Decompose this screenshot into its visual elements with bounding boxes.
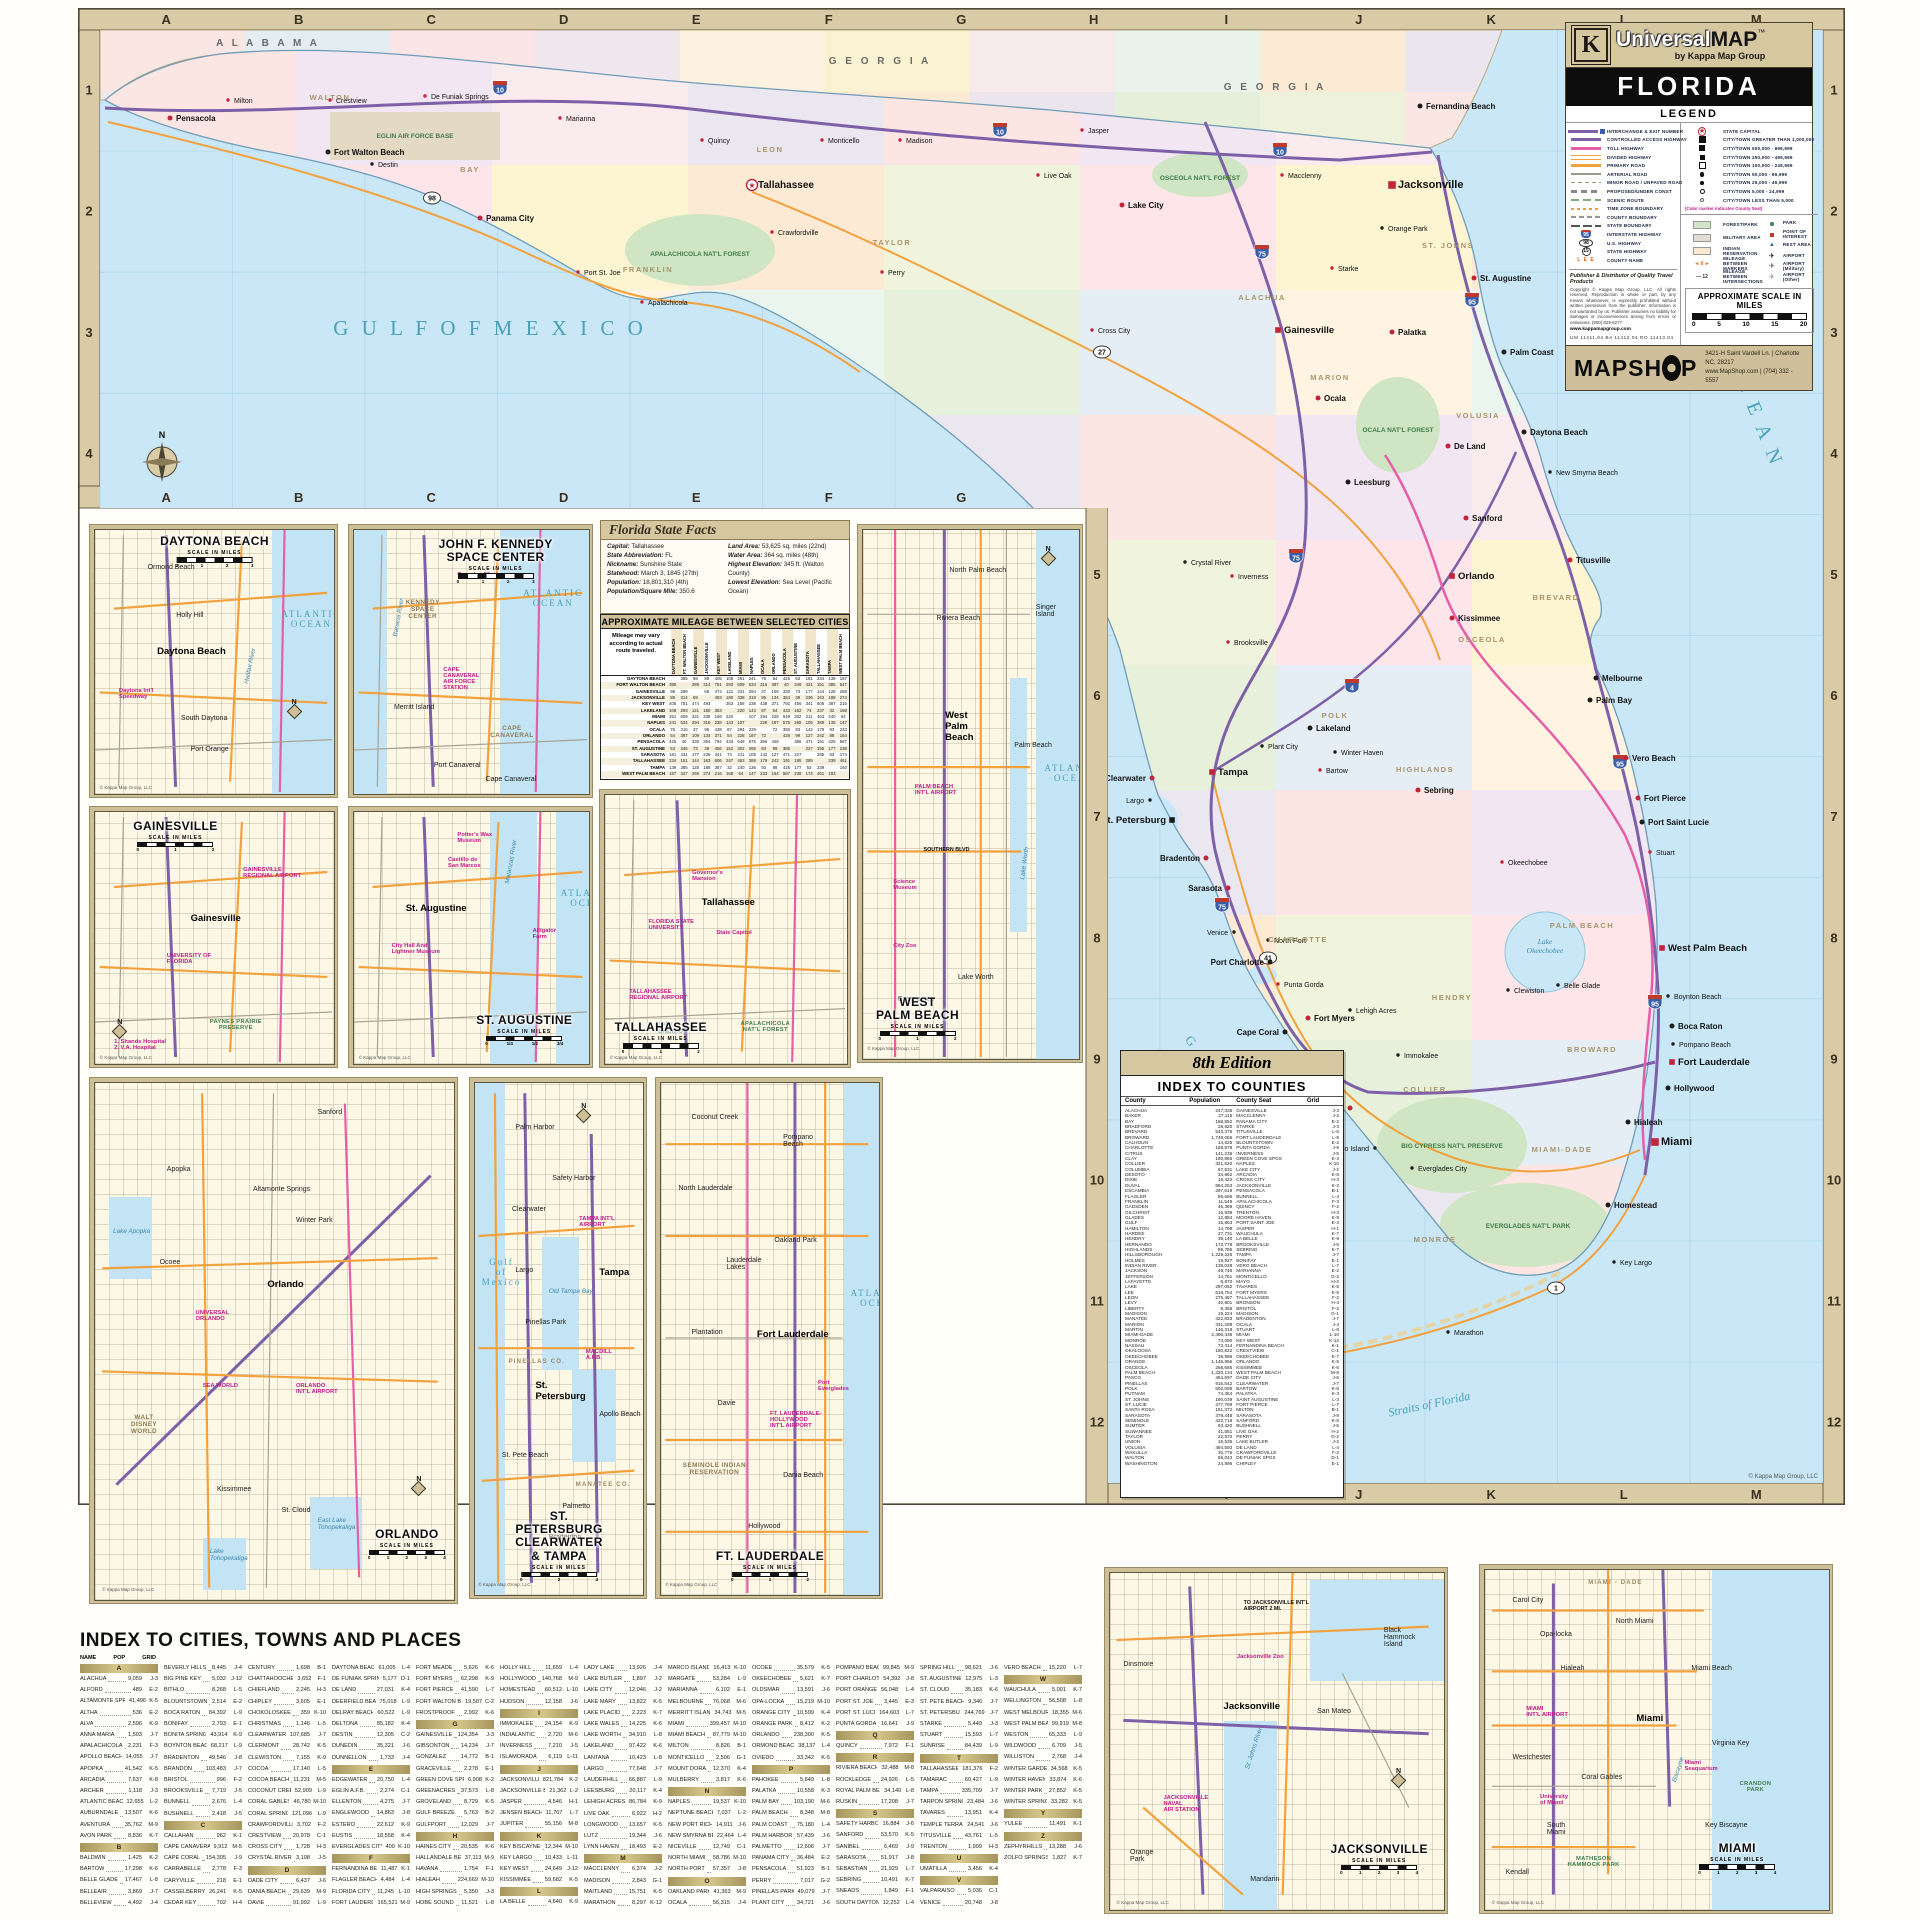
inset-credit: © Kappa Map Group, LLC	[1492, 1900, 1544, 1905]
map-label: Port Orange	[191, 746, 229, 753]
city-index-entry: FERNANDINA BEACH11,487K-1	[332, 1864, 410, 1875]
map-label: UNIVERSAL ORLANDO	[196, 1310, 230, 1322]
city-index-entry: CENTURY1,698B-1	[248, 1663, 326, 1674]
legend-item-label: CITY/TOWN 50,000 - 99,999	[1723, 172, 1787, 177]
map-label: PAYNES PRAIRIE PRESERVE	[210, 1019, 262, 1031]
city-index-entry: HAINES CITY20,535K-6	[416, 1842, 494, 1853]
city-index-entry: BROOKSVILLE7,719J-5	[164, 1786, 242, 1797]
city-index-entry: JENSEN BEACH11,707L-7	[500, 1808, 578, 1819]
city-index-column: BEVERLY HILLS8,445J-4BIG PINE KEY5,032J-…	[164, 1663, 242, 1911]
svg-text:Port Saint Lucie: Port Saint Lucie	[1648, 818, 1709, 827]
map-label: Mandarin	[1250, 1876, 1279, 1883]
svg-text:C: C	[427, 490, 437, 505]
north-arrow-icon: N	[1040, 546, 1056, 564]
city-index-entry: PORT ORANGE56,048L-4	[836, 1685, 914, 1696]
svg-text:A: A	[162, 12, 172, 27]
svg-text:C: C	[427, 12, 437, 27]
city-index-column: OCOEE35,579K-5OKEECHOBEE5,621K-7OLDSMAR1…	[752, 1663, 830, 1911]
city-index-entry: WINTER HAVEN33,874K-6	[1004, 1775, 1082, 1786]
city-index-entry: LAKE PLACID2,223K-7	[584, 1708, 662, 1719]
city-index-entry: RIVIERA BEACH32,488M-8	[836, 1763, 914, 1774]
map-label: Apollo Beach	[599, 1411, 640, 1418]
fact-row: Population/Square Mile: 350.6	[607, 588, 722, 597]
inset-scale-label: SCALE IN MILES	[515, 1565, 603, 1571]
svg-text:Port St. Joe: Port St. Joe	[584, 270, 621, 277]
svg-text:Venice: Venice	[1207, 930, 1228, 937]
svg-text:De Land: De Land	[1454, 442, 1486, 451]
map-label: Miami Beach	[1691, 1665, 1731, 1672]
legend-swatch-state	[1569, 222, 1603, 230]
city-index-entry: CHATTAHOOCHEE3,652F-1	[248, 1674, 326, 1685]
svg-text:Punta Gorda: Punta Gorda	[1284, 982, 1324, 989]
map-label: TAMPA INT'L AIRPORT	[579, 1216, 614, 1228]
county-row: WASHINGTON24,896CHIPLEYE-1	[1125, 1461, 1339, 1466]
mapshop-logo: MAPSHOP	[1574, 355, 1697, 382]
map-label: Safety Harbor	[552, 1175, 595, 1182]
map-label: South Daytona	[181, 715, 227, 722]
inset-title-text: WEST PALM BEACH	[876, 996, 959, 1022]
inset-title-text: FT. LAUDERDALE	[716, 1550, 824, 1563]
fact-row: Water Area: 364 sq. miles (48th)	[728, 552, 843, 561]
legend-swatch-proposed	[1569, 187, 1603, 195]
legend-item: 95INTERSTATE HIGHWAY	[1569, 230, 1677, 239]
svg-text:MIAMI-DADE: MIAMI-DADE	[1532, 1145, 1593, 1154]
map-label: Port Everglades	[818, 1380, 849, 1392]
city-index-section: V	[920, 1876, 998, 1885]
svg-text:Marianna: Marianna	[566, 116, 595, 123]
city-index-section: B	[80, 1843, 158, 1852]
map-label: KENNEDY SPACE CENTER	[406, 599, 440, 620]
mileage-col-header: PENSACOLA	[782, 629, 793, 675]
svg-text:7: 7	[1830, 809, 1837, 824]
inset-roads	[95, 1083, 452, 1598]
legend-item-label: CITY/TOWN 5,000 - 24,999	[1723, 189, 1784, 194]
svg-text:G U L F O F M E X I: G U L F O F M E X I C O	[333, 316, 646, 340]
map-label: West Palm Beach	[945, 710, 974, 743]
mapshop-address: 3421-H Saint Vardell Ln. | Charlotte NC,…	[1705, 350, 1804, 368]
city-index-entry: SANIBEL6,469J-9	[836, 1842, 914, 1853]
map-label: North Palm Beach	[949, 567, 1006, 574]
city-index-column: AALACHUA9,059J-3ALFORD489E-2ALTAMONTE SP…	[80, 1663, 158, 1911]
fact-row: Statehood: March 3, 1845 (27th)	[607, 570, 722, 579]
legend-item-label: ARTERIAL ROAD	[1607, 172, 1648, 177]
city-index-section: Z	[1004, 1832, 1082, 1841]
inset-title-text: GAINESVILLE	[133, 820, 217, 833]
legend-swatch-minor	[1569, 179, 1603, 187]
city-index-entry: CRAWFORDVILLE3,702F-2	[248, 1820, 326, 1831]
city-index-entry: TITUSVILLE43,761L-5	[920, 1831, 998, 1842]
map-label: Lake Tohopekaliga	[210, 1548, 248, 1562]
legend-item: CITY/TOWN LESS THAN 5,000	[1685, 196, 1814, 205]
city-index-entry: PERRY7,017G-2	[752, 1876, 830, 1887]
inset-map-gainesville: GainesvilleUNIVERSITY OF FLORIDAGAINESVI…	[94, 811, 335, 1065]
map-label: St. Augustine	[406, 903, 467, 914]
map-label: Tallahassee	[702, 897, 755, 908]
legend-swatch-toll	[1569, 144, 1603, 152]
inset-orlando: SanfordApopkaAltamonte SpringsWinter Par…	[90, 1078, 457, 1603]
city-index-column: POMPANO BEACH99,845M-9PORT CHARLOTTE54,3…	[836, 1663, 914, 1911]
legend-title: LEGEND	[1566, 106, 1812, 123]
svg-text:Destin: Destin	[378, 162, 398, 169]
city-index-entry: JACKSONVILLE BEACH21,362L-2	[500, 1786, 578, 1797]
fact-row: Nickname: Sunshine State	[607, 561, 722, 570]
mileage-cell: 164	[769, 771, 780, 777]
inset-staug: St. AugustineCastillo de San MarcosCity …	[349, 807, 592, 1067]
city-index-section: M	[584, 1854, 662, 1863]
svg-text:Fernandina Beach: Fernandina Beach	[1426, 102, 1495, 111]
city-index-column: MARCO ISLAND16,413K-10MARGATE53,284L-9MA…	[668, 1663, 746, 1911]
city-index-entry: CARRABELLE2,778F-3	[164, 1864, 242, 1875]
svg-text:D: D	[559, 12, 568, 27]
svg-text:3: 3	[85, 325, 92, 340]
city-index-entry: CHIPLEY3,605E-1	[248, 1697, 326, 1708]
svg-text:Boynton Beach: Boynton Beach	[1674, 994, 1722, 1001]
city-index-entry: GULF BREEZE5,763B-2	[416, 1808, 494, 1819]
city-index-entry: TAMARAC60,427L-9	[920, 1775, 998, 1786]
inset-scale-ticks: 0123	[176, 563, 254, 568]
map-label: TO JACKSONVILLE INT'L AIRPORT 2 MI.	[1244, 1600, 1309, 1612]
city-index-entry: DADE CITY6,437J-6	[248, 1876, 326, 1887]
svg-text:10: 10	[1090, 1172, 1104, 1187]
svg-text:Panama City: Panama City	[486, 214, 535, 223]
inset-title-gainesville: GAINESVILLESCALE IN MILES012	[133, 820, 217, 853]
map-label: Oakland Park	[774, 1237, 816, 1244]
svg-text:© Kappa Map Group, LLC: © Kappa Map Group, LLC	[1749, 1473, 1819, 1480]
inset-map-wpb: ATLANTIC OCEANSinger IslandRiviera Beach…	[862, 529, 1080, 1060]
svg-text:Bartow: Bartow	[1326, 768, 1349, 775]
legend-item-label: STATE BOUNDARY	[1607, 223, 1652, 228]
city-index-section: Q	[836, 1731, 914, 1740]
svg-text:BAY: BAY	[460, 165, 480, 174]
map-label: Castillo de San Marcos	[448, 857, 481, 869]
svg-text:Titusville: Titusville	[1576, 556, 1611, 565]
city-index-entry: EVERGLADES CITY400K-10	[332, 1842, 410, 1853]
city-index-entry: CRESTVIEW20,978C-1	[248, 1831, 326, 1842]
mileage-col-header: GAINESVILLE	[693, 629, 704, 675]
mileage-cell: 147	[747, 771, 758, 777]
mileage-title: APPROXIMATE MILEAGE BETWEEN SELECTED CIT…	[601, 615, 849, 629]
city-index-entry: MAITLAND15,751K-5	[584, 1887, 662, 1898]
mileage-cell	[838, 771, 849, 777]
svg-text:Stuart: Stuart	[1656, 850, 1675, 857]
city-index-entry: PORT ST. JOE3,445E-3	[836, 1697, 914, 1708]
city-index-section: R	[836, 1753, 914, 1762]
map-label: Daytona Beach	[157, 646, 226, 657]
legend-item: — 12MILEAGE BETWEEN INTERSECTIONS	[1685, 270, 1763, 283]
map-label: Davie	[718, 1400, 736, 1407]
legend-item: SCENIC ROUTE	[1569, 196, 1677, 205]
map-label: Potter's Wax Museum	[457, 832, 492, 844]
city-index-entry: APOLLO BEACH14,055J-7	[80, 1752, 158, 1763]
city-index-entry: DANIA BEACH29,639M-9	[248, 1887, 326, 1898]
map-label: Hialeah	[1561, 1665, 1585, 1672]
city-index-entry: GREENACRES37,573L-8	[416, 1786, 494, 1797]
svg-text:98: 98	[428, 196, 436, 203]
city-index-entry: GREEN COVE SPRINGS6,908K-2	[416, 1775, 494, 1786]
mileage-col-header: OCALA	[760, 629, 771, 675]
svg-text:9: 9	[1830, 1051, 1837, 1066]
svg-text:Lakeland: Lakeland	[1316, 724, 1351, 733]
legend-item: COUNTY BOUNDARY	[1569, 213, 1677, 222]
city-index-entry: ST. PETERSBURG244,769J-7	[920, 1708, 998, 1719]
legend-item-label: CITY/TOWN GREATER THAN 1,000,000	[1723, 137, 1814, 142]
city-index-entry: HIALEAH224,669M-10	[416, 1875, 494, 1886]
city-index-entry: CLEARWATER107,685J-7	[248, 1730, 326, 1741]
inset-title-tallahassee: TALLAHASSEESCALE IN MILES012	[615, 1021, 707, 1054]
svg-text:HENDRY: HENDRY	[1432, 993, 1472, 1002]
inset-title-daytona: DAYTONA BEACHSCALE IN MILES0123	[160, 535, 269, 568]
city-index-entry: TEMPLE TERRACE24,541J-6	[920, 1820, 998, 1831]
city-index-entry: NORTH MIAMI58,786M-10	[668, 1853, 746, 1864]
svg-text:Sarasota: Sarasota	[1188, 884, 1222, 893]
svg-text:PALM BEACH: PALM BEACH	[1550, 921, 1614, 930]
city-index-entry: ST. AUGUSTINE12,975L-3	[920, 1674, 998, 1685]
city-index-entry: FROSTPROOF2,992K-6	[416, 1708, 494, 1719]
svg-text:7: 7	[1093, 809, 1100, 824]
svg-text:Hialeah: Hialeah	[1634, 1118, 1663, 1127]
city-index-entry: IMMOKALEE24,154K-9	[500, 1719, 578, 1730]
city-index-entry: EDGEWATER20,750L-4	[332, 1775, 410, 1786]
city-index-entry: OCOEE35,579K-5	[752, 1663, 830, 1674]
map-label: SEA WORLD	[203, 1383, 238, 1389]
svg-text:Jacksonville: Jacksonville	[1398, 179, 1463, 191]
mapshop-bar: MAPSHOP 3421-H Saint Vardell Ln. | Charl…	[1566, 345, 1812, 390]
city-index-entry: COCOA17,140L-5	[248, 1764, 326, 1775]
svg-text:Ocala: Ocala	[1324, 394, 1346, 403]
svg-text:Perry: Perry	[888, 270, 905, 277]
city-index-entry: ANNA MARIA1,503J-7	[80, 1730, 158, 1741]
map-label: Coral Gables	[1581, 1774, 1622, 1781]
mileage-col-header: ORLANDO	[771, 629, 782, 675]
city-index-entry: JASPER4,546H-1	[500, 1797, 578, 1808]
mileage-cell: 64	[735, 771, 746, 777]
map-label: University of Miami	[1540, 1794, 1568, 1806]
city-index-entry: ST. CLOUD35,183K-6	[920, 1685, 998, 1696]
svg-text:Pensacola: Pensacola	[176, 114, 216, 123]
city-index-entry: MIAMI BEACH87,779M-10	[668, 1730, 746, 1741]
map-label: ATLANTIC OCEAN	[561, 888, 590, 908]
brand-map: MAP	[1711, 28, 1758, 51]
city-index-entry: CORAL GABLES46,780M-10	[248, 1797, 326, 1808]
svg-text:Crystal River: Crystal River	[1191, 560, 1232, 567]
city-index-entry: YULEE11,491K-1	[1004, 1819, 1082, 1830]
inset-credit: © Kappa Map Group, LLC	[1117, 1900, 1169, 1905]
city-index-entry: HOLLY HILL11,659L-4	[500, 1663, 578, 1674]
city-index-entry: BOYNTON BEACH68,217L-9	[164, 1741, 242, 1752]
svg-text:St. Augustine: St. Augustine	[1480, 274, 1532, 283]
legend-item: INTERCHANGE & EXIT NUMBER	[1569, 127, 1677, 136]
mileage-col-header: KEY WEST	[716, 629, 727, 675]
map-label: St. Pete Beach	[502, 1452, 549, 1459]
svg-text:Belle Glade: Belle Glade	[1564, 983, 1600, 990]
svg-text:Tampa: Tampa	[1218, 767, 1249, 778]
mileage-col-header: ST. AUGUSTINE	[793, 629, 804, 675]
legend-points-col: PARKPOINT OF INTEREST▲REST AREA✈AIRPORT✈…	[1765, 218, 1814, 283]
map-label: State Capitol	[716, 930, 751, 936]
svg-text:11: 11	[1090, 1294, 1104, 1309]
city-index-entry: BLOUNTSTOWN2,514E-2	[164, 1697, 242, 1708]
legend-item-label: STATE HIGHWAY	[1607, 249, 1647, 254]
svg-text:9: 9	[1093, 1051, 1100, 1066]
city-index-section: A	[80, 1664, 158, 1673]
city-index-entry: ST. PETE BEACH9,346J-7	[920, 1697, 998, 1708]
legend-item: TIME ZONE BOUNDARY	[1569, 204, 1677, 213]
city-index-entry: SNEADS1,849F-1	[836, 1886, 914, 1897]
city-index-entry: CLERMONT28,742K-5	[248, 1741, 326, 1752]
svg-text:APALACHICOLA NAT'L FOREST: APALACHICOLA NAT'L FOREST	[650, 251, 750, 258]
svg-text:5: 5	[1830, 567, 1837, 582]
svg-text:1: 1	[1830, 83, 1837, 98]
svg-text:Milton: Milton	[234, 98, 253, 105]
city-index-entry: ATLANTIC BEACH12,655L-2	[80, 1797, 158, 1808]
city-index-entry: INVERNESS7,210J-5	[500, 1741, 578, 1752]
city-index-entry: MERRITT ISLAND34,743M-5	[668, 1708, 746, 1719]
city-index-entry: WINTER GARDEN34,568K-5	[1004, 1764, 1082, 1775]
svg-text:Fort Walton Beach: Fort Walton Beach	[334, 148, 404, 157]
map-label: Jacksonville Zoo	[1237, 1654, 1284, 1660]
svg-text:Gainesville: Gainesville	[1284, 325, 1334, 336]
city-index-entry: PAHOKEE5,649L-8	[752, 1775, 830, 1786]
city-index-section: F	[332, 1854, 410, 1863]
inset-scale-ticks: 01234	[1340, 1870, 1418, 1875]
inset-scale-label: SCALE IN MILES	[1330, 1858, 1427, 1864]
city-index-entry: WILLISTON2,768J-4	[1004, 1752, 1082, 1763]
city-index-entry: BEVERLY HILLS8,445J-4	[164, 1663, 242, 1674]
inset-map-jfk: ATLANTIC OCEANKENNEDY SPACE CENTERCAPE C…	[353, 529, 590, 795]
city-index-entry: CLEWISTON7,155K-9	[248, 1753, 326, 1764]
legend-swatch-timezone	[1569, 205, 1603, 213]
inset-title-jfk: JOHN F. KENNEDY SPACE CENTERSCALE IN MIL…	[439, 538, 553, 584]
map-label: Palm Harbor	[515, 1124, 554, 1131]
map-label: Orlando	[267, 1279, 303, 1290]
svg-text:1: 1	[85, 83, 92, 98]
legend-item: ✈AIRPORT (Military)	[1765, 262, 1814, 273]
city-index-entry: APOPKA41,542K-5	[80, 1764, 158, 1775]
city-index-entry: DE LAND27,031K-4	[332, 1685, 410, 1696]
city-index-entry: OVIEDO33,342K-5	[752, 1753, 830, 1764]
inset-wpb: ATLANTIC OCEANSinger IslandRiviera Beach…	[858, 525, 1082, 1062]
legend-item-label: PROPOSED/UNDER CONST	[1607, 189, 1672, 194]
svg-text:Fort Pierce: Fort Pierce	[1644, 794, 1686, 803]
map-label: SEMINOLE INDIAN RESERVATION	[683, 1462, 746, 1476]
map-label: CAPE CANAVERAL AIR FORCE STATION	[443, 667, 479, 691]
map-label: TALLAHASSEE REGIONAL AIRPORT	[629, 989, 687, 1001]
city-index-entry: LIVE OAK6,922H-2	[584, 1809, 662, 1820]
inset-map-ftlaud: ATLANTIC OCEANCoconut CreekPompano Beach…	[660, 1082, 880, 1596]
city-index-entry: ALVA2,596K-9	[80, 1719, 158, 1730]
mileage-cell: 233	[758, 771, 769, 777]
city-index-entry: AUBURNDALE13,507K-6	[80, 1808, 158, 1819]
city-index-entry: ORANGE CITY10,599K-4	[752, 1708, 830, 1719]
city-index-entry: OCALA56,315J-4	[668, 1898, 746, 1909]
legend-item: CONTROLLED ACCESS HIGHWAY	[1569, 136, 1677, 145]
map-label: Old Tampa Bay	[549, 1288, 593, 1295]
map-label: Lake Worth	[958, 974, 994, 981]
svg-text:Inverness: Inverness	[1238, 574, 1269, 581]
city-index-entry: NAPLES19,537K-10	[668, 1797, 746, 1808]
city-index-entry: DAYTONA BEACH61,005L-4	[332, 1663, 410, 1674]
city-index-entry: CHRISTMAS1,146L-5	[248, 1719, 326, 1730]
city-index-entry: FORT PIERCE41,590L-7	[416, 1685, 494, 1696]
city-index-entry: DESTIN12,305C-2	[332, 1730, 410, 1741]
legend-swatch-sq2	[1685, 144, 1719, 152]
city-index-entry: BRISTOL996F-2	[164, 1775, 242, 1786]
publisher-website: www.kappamapgroup.com	[1570, 327, 1676, 332]
inset-title-text: JOHN F. KENNEDY SPACE CENTER	[439, 538, 553, 564]
legend-item: 98U.S. HIGHWAY	[1569, 239, 1677, 248]
svg-text:Bradenton: Bradenton	[1160, 854, 1200, 863]
city-index-entry: FLAGLER BEACH4,484L-4	[332, 1875, 410, 1886]
svg-text:75: 75	[1292, 556, 1300, 563]
legend-item-label: COUNTY NAME	[1607, 258, 1643, 263]
legend-swatch-arterial	[1569, 170, 1603, 178]
svg-text:Pompano Beach: Pompano Beach	[1679, 1042, 1731, 1049]
map-label: Sanford	[318, 1109, 343, 1116]
map-label: Largo	[515, 1267, 533, 1274]
legend-item: ▲REST AREA	[1765, 240, 1814, 251]
city-index-entry: ALTHA536E-2	[80, 1708, 158, 1719]
city-index-entry: PLANT CITY34,721J-6	[752, 1898, 830, 1909]
city-index-col-header: GRID	[142, 1655, 156, 1661]
legend-item: MILITARY AREA	[1685, 231, 1763, 244]
state-facts: Florida State Facts Capital: Tallahassee…	[600, 520, 850, 614]
map-label: FT. LAUDERDALE- HOLLYWOOD INT'L AIRPORT	[770, 1411, 822, 1429]
inset-scale-ticks: 024	[520, 1577, 598, 1582]
mileage-cell: 174	[804, 771, 815, 777]
inset-jax: DinsmoreTO JACKSONVILLE INT'L AIRPORT 2 …	[1105, 1568, 1447, 1913]
legend-item-label: COUNTY BOUNDARY	[1607, 215, 1657, 220]
legend-item-label: MINOR ROAD / UNPAVED ROAD	[1607, 180, 1683, 185]
city-index-entry: ROCKLEDGE24,926L-5	[836, 1775, 914, 1786]
city-index-entry: LAKE BUTLER1,897J-2	[584, 1674, 662, 1685]
city-index-section: G	[416, 1720, 494, 1729]
inset-title-text: ORLANDO	[368, 1528, 446, 1541]
svg-text:Brooksville: Brooksville	[1234, 640, 1268, 647]
city-index-entry: KEY LARGO10,433L-11	[500, 1853, 578, 1864]
svg-text:Lake: Lake	[1537, 937, 1553, 946]
city-index-entry: ALACHUA9,059J-3	[80, 1674, 158, 1685]
fact-row: Lowest Elevation: Sea Level (Pacific Oce…	[728, 579, 843, 597]
map-label: Orange Park	[1130, 1849, 1153, 1863]
city-index-entry: PALM HARBOR57,439J-6	[752, 1831, 830, 1842]
city-index-entry: ZOLFO SPRINGS1,827K-7	[1004, 1853, 1082, 1864]
legend-item: CITY/TOWN 500,000 - 999,999	[1685, 144, 1814, 153]
mileage-cell: 238	[792, 771, 803, 777]
mileage-cell: 216	[713, 771, 724, 777]
mileage-col-header: DAYTONA BEACH	[671, 629, 682, 675]
mileage-cell: 268	[690, 771, 701, 777]
map-label: Kendall	[1506, 1869, 1529, 1876]
inset-title-staug: ST. AUGUSTINESCALE IN MILES01/41/23/4	[476, 1014, 572, 1047]
city-index-entry: OAKLAND PARK41,363M-9	[668, 1887, 746, 1898]
city-index-entry: MONTICELLO2,506G-1	[668, 1753, 746, 1764]
map-label: St. Petersburg	[535, 1380, 585, 1402]
svg-text:OCALA NAT'L FOREST: OCALA NAT'L FOREST	[1362, 427, 1433, 434]
city-index-entry: CRYSTAL RIVER3,108J-5	[248, 1853, 326, 1864]
city-index-entry: LARGO77,648J-7	[584, 1764, 662, 1775]
inset-credit: © Kappa Map Group, LLC	[665, 1582, 717, 1587]
city-index-entry: AVENTURA35,762M-9	[80, 1820, 158, 1831]
svg-text:J: J	[1355, 12, 1362, 27]
svg-text:Cross City: Cross City	[1098, 328, 1131, 335]
city-index-entry: CORAL SPRINGS121,096L-9	[248, 1809, 326, 1820]
title-block: K UniversalMAP™ by Kappa Map Group FLORI…	[1565, 22, 1813, 391]
county-col-header: Grid	[1307, 1098, 1339, 1104]
legend-item-label: STATE CAPITAL	[1723, 129, 1761, 134]
svg-text:BROWARD: BROWARD	[1567, 1045, 1617, 1054]
inset-title-text: ST. AUGUSTINE	[476, 1014, 572, 1027]
inset-credit: © Kappa Map Group, LLC	[359, 1055, 411, 1060]
